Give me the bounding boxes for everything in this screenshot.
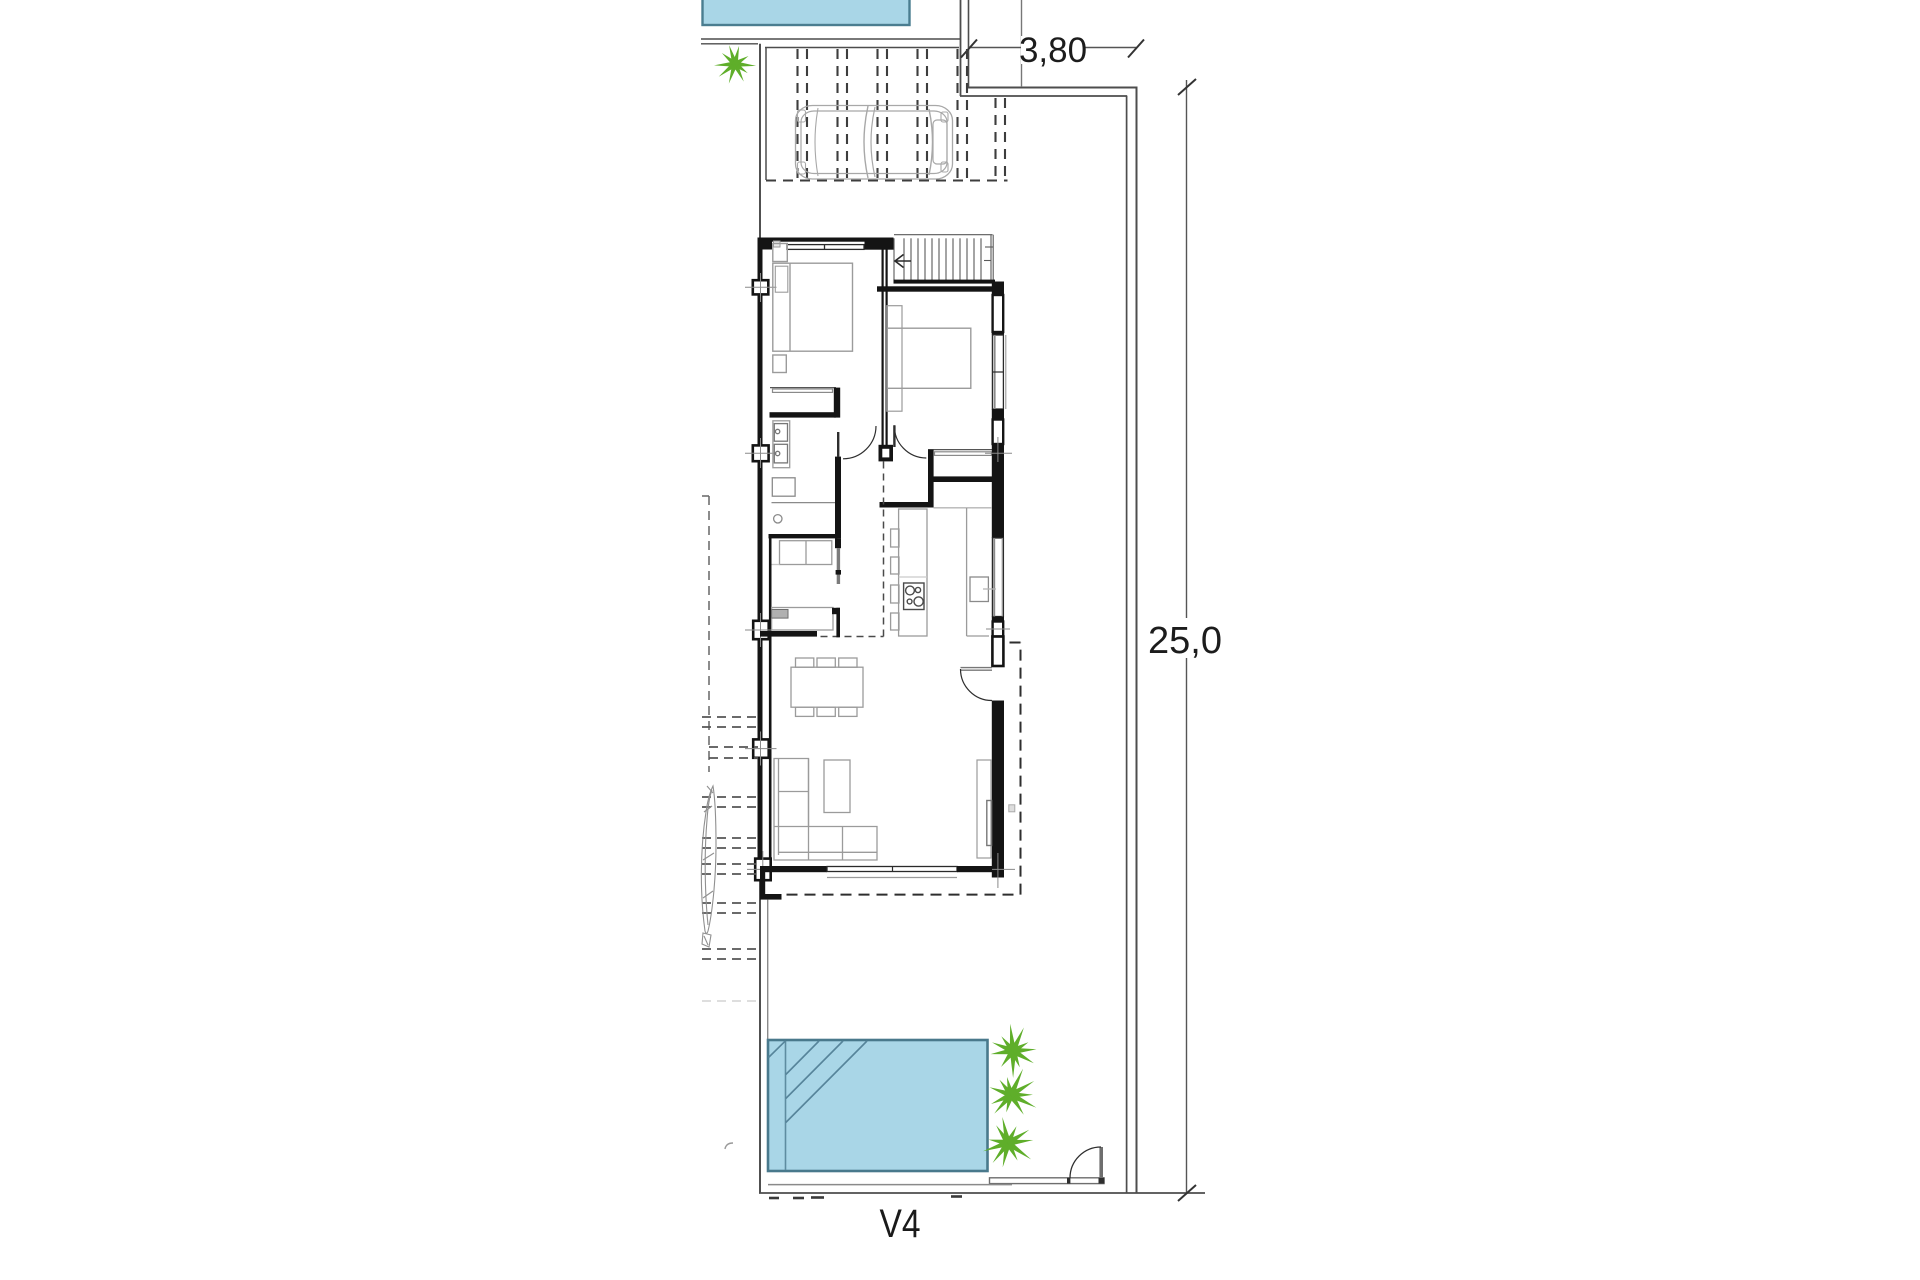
- svg-text:25,0: 25,0: [1148, 620, 1222, 662]
- svg-text:3,80: 3,80: [1019, 31, 1087, 70]
- svg-text:V4: V4: [880, 1202, 921, 1246]
